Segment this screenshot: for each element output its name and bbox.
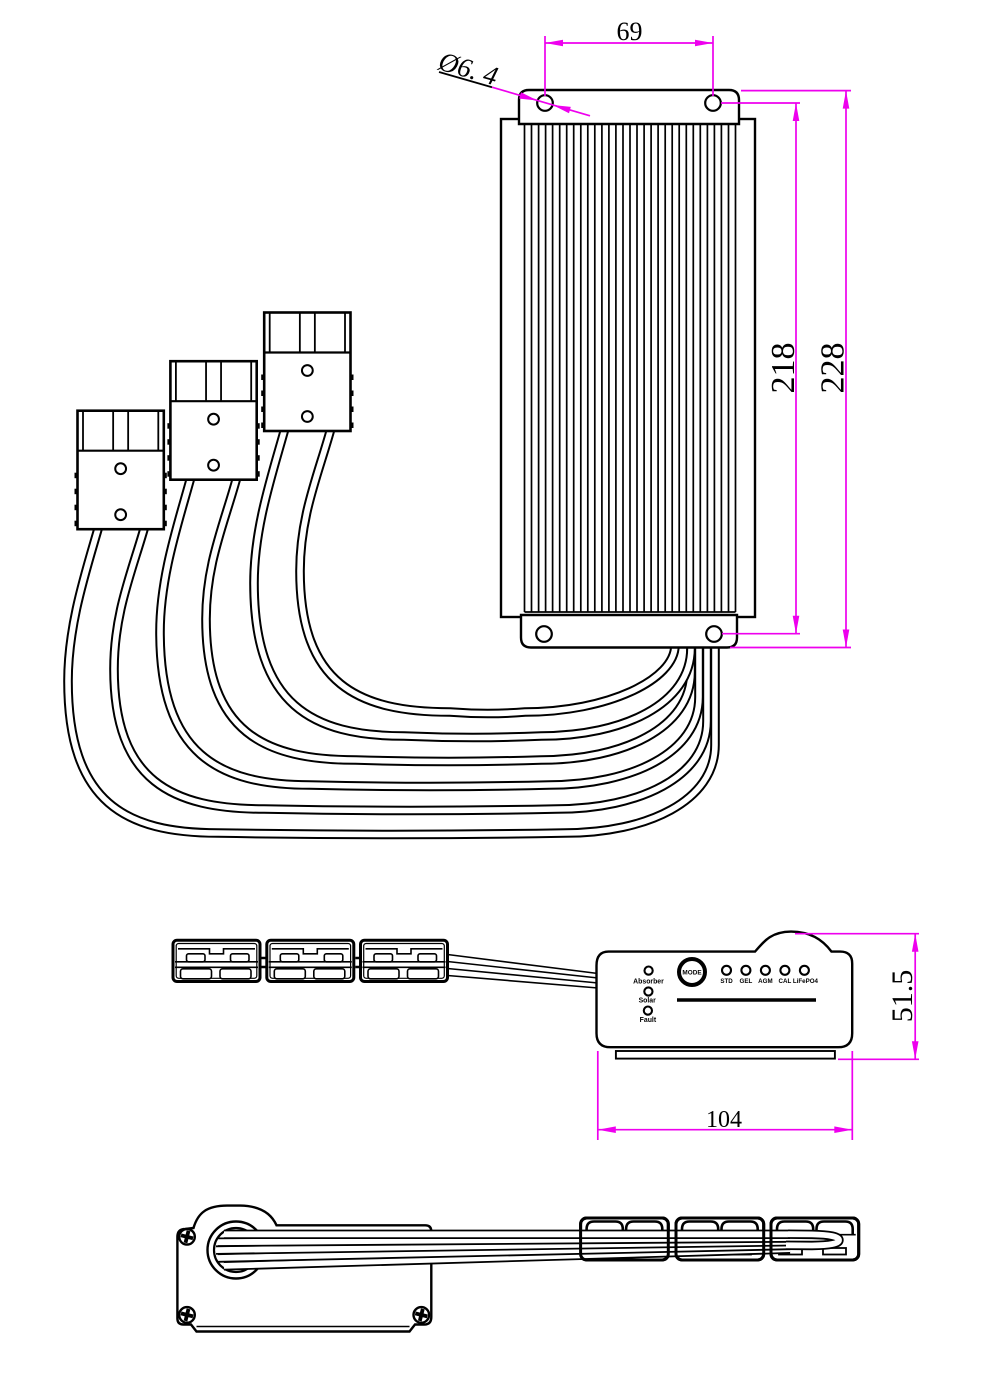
svg-text:MODE: MODE (682, 970, 702, 977)
svg-text:AGM: AGM (758, 978, 772, 985)
svg-text:104: 104 (706, 1107, 742, 1133)
svg-text:218: 218 (765, 343, 802, 394)
svg-text:Absorber: Absorber (633, 978, 664, 985)
svg-text:51.5: 51.5 (886, 970, 919, 1023)
svg-text:69: 69 (617, 17, 643, 46)
svg-text:Fault: Fault (640, 1017, 657, 1024)
svg-text:STD: STD (720, 978, 733, 985)
svg-text:CAL: CAL (779, 978, 792, 985)
svg-text:LiFePO4: LiFePO4 (793, 978, 819, 985)
svg-text:Solar: Solar (639, 998, 657, 1005)
svg-text:GEL: GEL (740, 978, 753, 985)
svg-text:228: 228 (815, 343, 852, 394)
